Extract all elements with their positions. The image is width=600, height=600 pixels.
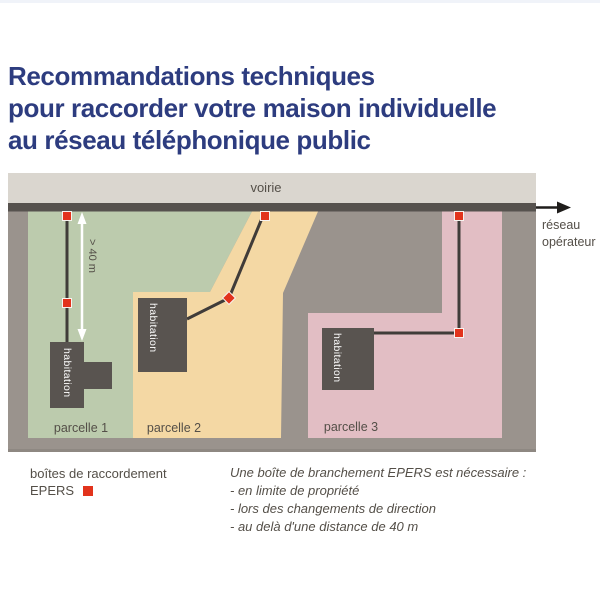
house-3-label: habitation [331,333,343,383]
legend-marker-label-line2: EPERS [30,482,74,499]
parcel-1-label: parcelle 1 [54,421,108,435]
network-label-line1: réseau [542,218,580,232]
legend-epers: boîtes de raccordement EPERS [30,465,167,499]
epers-box-marker [63,212,72,221]
legend-note: Une boîte de branchement EPERS est néces… [230,464,526,536]
voirie-label: voirie [250,180,281,195]
epers-box-marker [63,299,72,308]
page-title: Recommandations techniques pour raccorde… [8,60,594,156]
legend-note-title: Une boîte de branchement EPERS est néces… [230,464,526,482]
epers-legend-icon [83,486,93,496]
legend-note-item: - en limite de propriété [230,482,526,500]
parcel-2-label: parcelle 2 [147,421,201,435]
site-plan-diagram: > 40 m habitation habitation habitation … [0,170,600,462]
parcel-3-label: parcelle 3 [324,420,378,434]
epers-box-marker [455,329,464,338]
page-top-edge [0,0,600,3]
epers-box-marker [455,212,464,221]
network-label-line2: opérateur [542,235,596,249]
house-2-label: habitation [147,303,159,353]
legend-marker-label-line1: boîtes de raccordement [30,465,167,482]
legend-note-item: - au delà d'une distance de 40 m [230,518,526,536]
road-line [8,203,536,212]
house-parcel-2 [138,298,187,372]
house-parcel-3 [322,328,374,390]
network-arrow-icon [557,202,571,214]
house-1-label: habitation [61,348,73,398]
frame-bottom-shadow [8,449,536,452]
distance-label: > 40 m [86,239,98,273]
epers-box-marker [261,212,270,221]
legend-note-item: - lors des changements de direction [230,500,526,518]
